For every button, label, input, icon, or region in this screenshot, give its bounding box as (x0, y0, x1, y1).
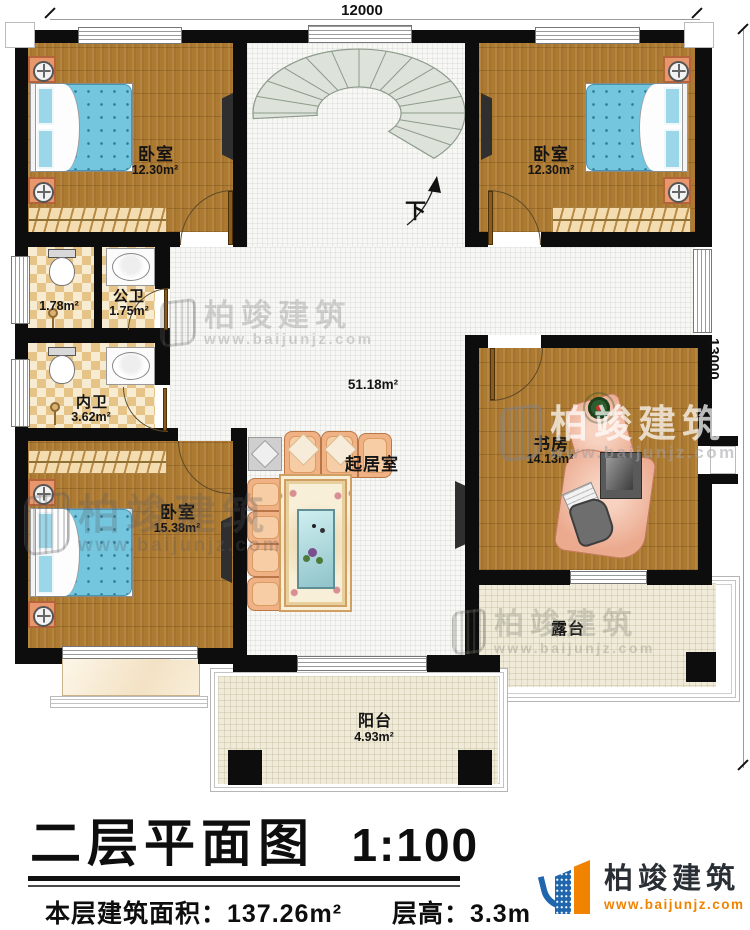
wardrobe (552, 207, 691, 233)
tv-icon (222, 93, 233, 160)
wall-segment (695, 30, 712, 247)
nightstand (663, 177, 691, 204)
lamp-icon (33, 61, 54, 82)
bay-window-seat (62, 658, 200, 696)
room-label-ensuite-bath: 内卫 (76, 395, 108, 410)
bay-window (62, 646, 198, 659)
dimension-line-right (743, 30, 744, 768)
door-leaf (163, 388, 167, 431)
sink-icon (112, 253, 150, 281)
room-area-study: 14.13m² (527, 453, 574, 466)
bed-headboard (30, 508, 36, 597)
wall-segment (155, 330, 170, 385)
stair-direction-arrow-icon (428, 176, 441, 193)
wall-segment (233, 43, 247, 247)
pillow (37, 87, 54, 125)
wall-segment (15, 328, 170, 343)
wall-segment (94, 247, 102, 330)
lamp-icon (33, 182, 54, 203)
dimension-corner-box (5, 22, 35, 48)
plant-icon (585, 394, 613, 422)
room-area-shower: 1.78m² (39, 300, 79, 313)
room-label-public-bath: 公卫 (113, 289, 145, 304)
logo-website: www.baijunjz.com (604, 898, 745, 912)
tv-icon (481, 93, 492, 160)
window (78, 27, 182, 44)
wardrobe (28, 207, 167, 233)
room-label-bedroom-tl: 卧室 (138, 146, 174, 163)
wall-segment (541, 232, 695, 247)
sink-icon (112, 352, 150, 380)
room-area-ensuite-bath: 3.62m² (71, 411, 111, 424)
room-area-living: 51.18m² (348, 378, 398, 392)
wall-segment (182, 30, 308, 43)
dimension-right-label: 13000 (706, 338, 721, 380)
wall-segment (412, 30, 535, 43)
wall-segment (15, 648, 62, 664)
dimension-corner-box (684, 22, 714, 48)
floor-drain-stem (54, 411, 56, 425)
title-underline-thin (28, 885, 460, 887)
wall-segment (541, 335, 712, 348)
nightstand (28, 56, 56, 83)
wall-niche (710, 446, 736, 474)
wall-segment (233, 441, 247, 672)
dimension-tick (44, 7, 55, 18)
dimension-top-label: 12000 (341, 3, 383, 18)
window (308, 25, 412, 43)
tv-icon (221, 516, 232, 583)
lamp-icon (668, 182, 689, 203)
wall-segment (647, 570, 712, 585)
window (693, 249, 712, 333)
flower-icon (303, 555, 310, 562)
wall-segment (427, 655, 500, 672)
lamp-icon (668, 61, 689, 82)
logo-name: 柏竣建筑 (604, 865, 745, 894)
toilet-icon (49, 355, 75, 384)
wardrobe (28, 450, 167, 474)
door-leaf (490, 348, 495, 400)
page-title-row: 二层平面图 1:100 (30, 818, 479, 869)
nightstand (28, 479, 56, 506)
hallway-floor (170, 247, 695, 335)
toilet-icon (49, 257, 75, 286)
railing-post (228, 750, 262, 785)
room-label-study: 书房 (533, 436, 569, 453)
floor-lamp (248, 437, 282, 471)
dimension-line-top (50, 19, 700, 20)
railing-post (686, 652, 716, 682)
pillow (37, 554, 54, 594)
floor-height-text: 层高：3.3m (392, 900, 531, 928)
wall-segment (465, 570, 570, 585)
room-area-balcony: 4.93m² (354, 731, 394, 744)
wall-segment (698, 436, 738, 446)
sliding-door (570, 571, 647, 584)
lamp-icon (33, 606, 54, 627)
window (11, 359, 30, 427)
nightstand (663, 56, 691, 83)
wall-segment (231, 428, 247, 441)
pillow (37, 129, 54, 169)
page-title: 二层平面图 (30, 815, 315, 872)
nightstand (28, 601, 56, 628)
sliding-door (297, 656, 427, 671)
pillow (664, 87, 681, 125)
door-leaf (164, 289, 168, 330)
bed-sheet (639, 84, 667, 171)
logo-tower-orange (572, 860, 590, 914)
dimension-tick (691, 7, 702, 18)
wall-segment (155, 247, 170, 289)
table-decor-dot (320, 528, 325, 533)
wall-segment (15, 232, 180, 247)
wall-segment (15, 30, 28, 658)
window (11, 256, 30, 324)
wall-segment (198, 648, 247, 664)
table-decor-dot (312, 524, 316, 528)
stairs-down-label: 下 (405, 195, 433, 225)
room-area-bedroom-tl: 12.30m² (132, 164, 179, 177)
room-terrace-floor (479, 583, 716, 687)
company-logo-icon (542, 858, 594, 918)
wall-segment (698, 474, 738, 484)
window (535, 27, 640, 44)
company-logo: 柏竣建筑 www.baijunjz.com (542, 858, 745, 918)
floor-info-row: 本层建筑面积：137.26m² 层高：3.3m (45, 894, 531, 930)
nightstand (28, 177, 56, 204)
drawing-scale: 1:100 (351, 819, 479, 871)
bed-headboard (30, 83, 36, 172)
pillow (37, 512, 54, 550)
pillow (664, 129, 681, 169)
room-label-terrace: 露台 (551, 622, 585, 638)
door-leaf (488, 191, 493, 245)
room-area-public-bath: 1.75m² (109, 305, 149, 318)
wall-segment (246, 655, 297, 672)
wall-segment (465, 232, 488, 247)
room-label-living: 起居室 (345, 456, 399, 473)
wall-segment (465, 335, 488, 348)
floor-area-text: 本层建筑面积：137.26m² (45, 900, 342, 928)
title-underline (28, 876, 460, 881)
floor-plan-page: 下 (0, 0, 750, 930)
room-area-bedroom-tr: 12.30m² (528, 164, 575, 177)
wall-segment (465, 43, 479, 247)
room-label-balcony: 阳台 (358, 714, 392, 730)
room-label-bedroom-tr: 卧室 (533, 146, 569, 163)
room-label-bedroom-bl: 卧室 (160, 504, 196, 521)
bed-headboard (682, 83, 688, 172)
monitor-screen (606, 458, 633, 490)
railing-post (458, 750, 492, 785)
bay-window-railing (50, 696, 208, 708)
lamp-icon (33, 484, 54, 505)
flower-icon (316, 557, 323, 564)
wall-segment (465, 335, 479, 660)
room-area-bedroom-bl: 15.38m² (154, 522, 201, 535)
door-leaf (228, 191, 233, 245)
